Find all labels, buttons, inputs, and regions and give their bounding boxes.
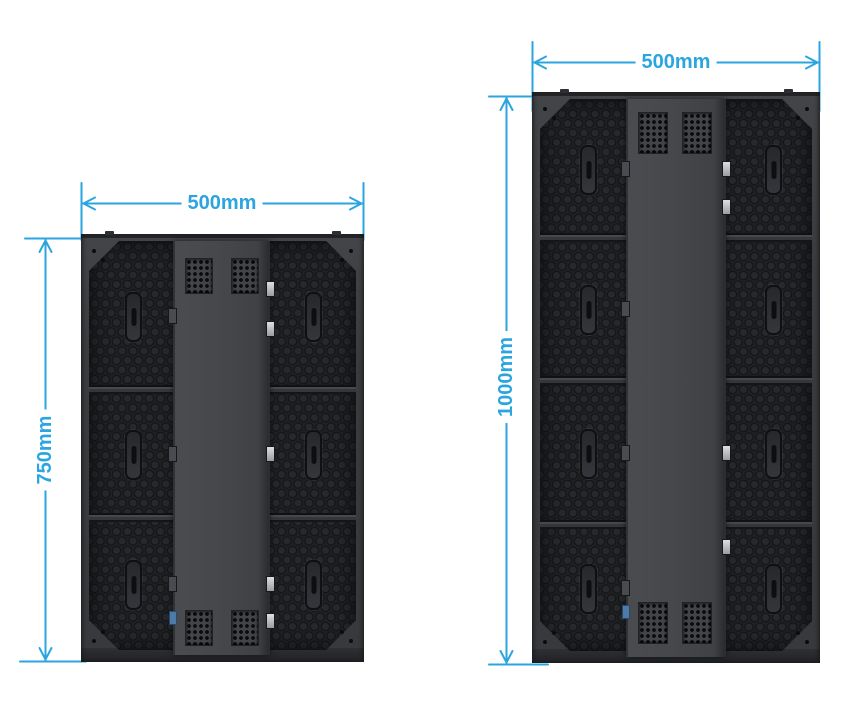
latch-clip-right xyxy=(722,161,731,177)
module-handle xyxy=(580,564,597,614)
corner-screws xyxy=(543,640,547,644)
module-handle xyxy=(765,145,782,195)
module-handle xyxy=(125,430,142,480)
dim-label-left-height: 750mm xyxy=(34,410,56,491)
latch-clip-left xyxy=(621,580,630,596)
vent-grille xyxy=(185,258,213,294)
latch-clip-right xyxy=(266,576,275,592)
dim-label-right-height: 1000mm xyxy=(495,331,517,423)
module-handle xyxy=(580,145,597,195)
latch-clip-right xyxy=(266,613,275,629)
top-tab xyxy=(560,89,569,93)
latch-clip-right xyxy=(266,321,275,337)
latch-clip-right xyxy=(266,281,275,297)
top-tab xyxy=(784,89,793,93)
latch-clip-right xyxy=(722,199,731,215)
module-handle xyxy=(580,429,597,479)
latch-clip-right xyxy=(722,445,731,461)
vent-grille xyxy=(638,602,668,644)
latch-clip-left xyxy=(621,161,630,177)
blue-latch-clip xyxy=(169,611,177,625)
corner-screws xyxy=(92,249,96,253)
corner-screws xyxy=(805,107,809,111)
vent-grille xyxy=(682,602,712,644)
module-handle xyxy=(125,292,142,342)
latch-clip-right xyxy=(722,539,731,555)
latch-clip-left xyxy=(621,301,630,317)
corner-screws xyxy=(805,640,809,644)
vent-grille xyxy=(638,112,668,154)
top-tab xyxy=(332,231,341,235)
vent-grille xyxy=(231,258,259,294)
led-cabinet-500x750 xyxy=(81,234,364,662)
latch-clip-left xyxy=(168,576,177,592)
latch-clip-left xyxy=(621,445,630,461)
module-handle xyxy=(125,560,142,610)
latch-clip-right xyxy=(266,446,275,462)
corner-screws xyxy=(349,639,353,643)
module-handle xyxy=(580,285,597,335)
module-handle xyxy=(765,285,782,335)
corner-screws xyxy=(349,249,353,253)
center-mounting-plate xyxy=(173,241,270,655)
corner-screws xyxy=(543,107,547,111)
dim-label-right-width: 500mm xyxy=(636,51,717,73)
vent-grille xyxy=(682,112,712,154)
latch-clip-left xyxy=(168,308,177,324)
vent-grille xyxy=(231,610,259,646)
module-handle xyxy=(765,564,782,614)
dim-label-left-width: 500mm xyxy=(182,192,263,214)
technical-drawing-canvas: 500mm 750mm 500mm 1000mm xyxy=(0,0,866,714)
top-tab xyxy=(105,231,114,235)
vent-grille xyxy=(185,610,213,646)
module-handle xyxy=(305,430,322,480)
center-mounting-plate xyxy=(626,99,726,657)
corner-screws xyxy=(92,639,96,643)
blue-latch-clip xyxy=(622,605,630,619)
module-handle xyxy=(305,560,322,610)
module-handle xyxy=(765,429,782,479)
latch-clip-left xyxy=(168,446,177,462)
led-cabinet-500x1000 xyxy=(532,92,820,663)
module-handle xyxy=(305,292,322,342)
